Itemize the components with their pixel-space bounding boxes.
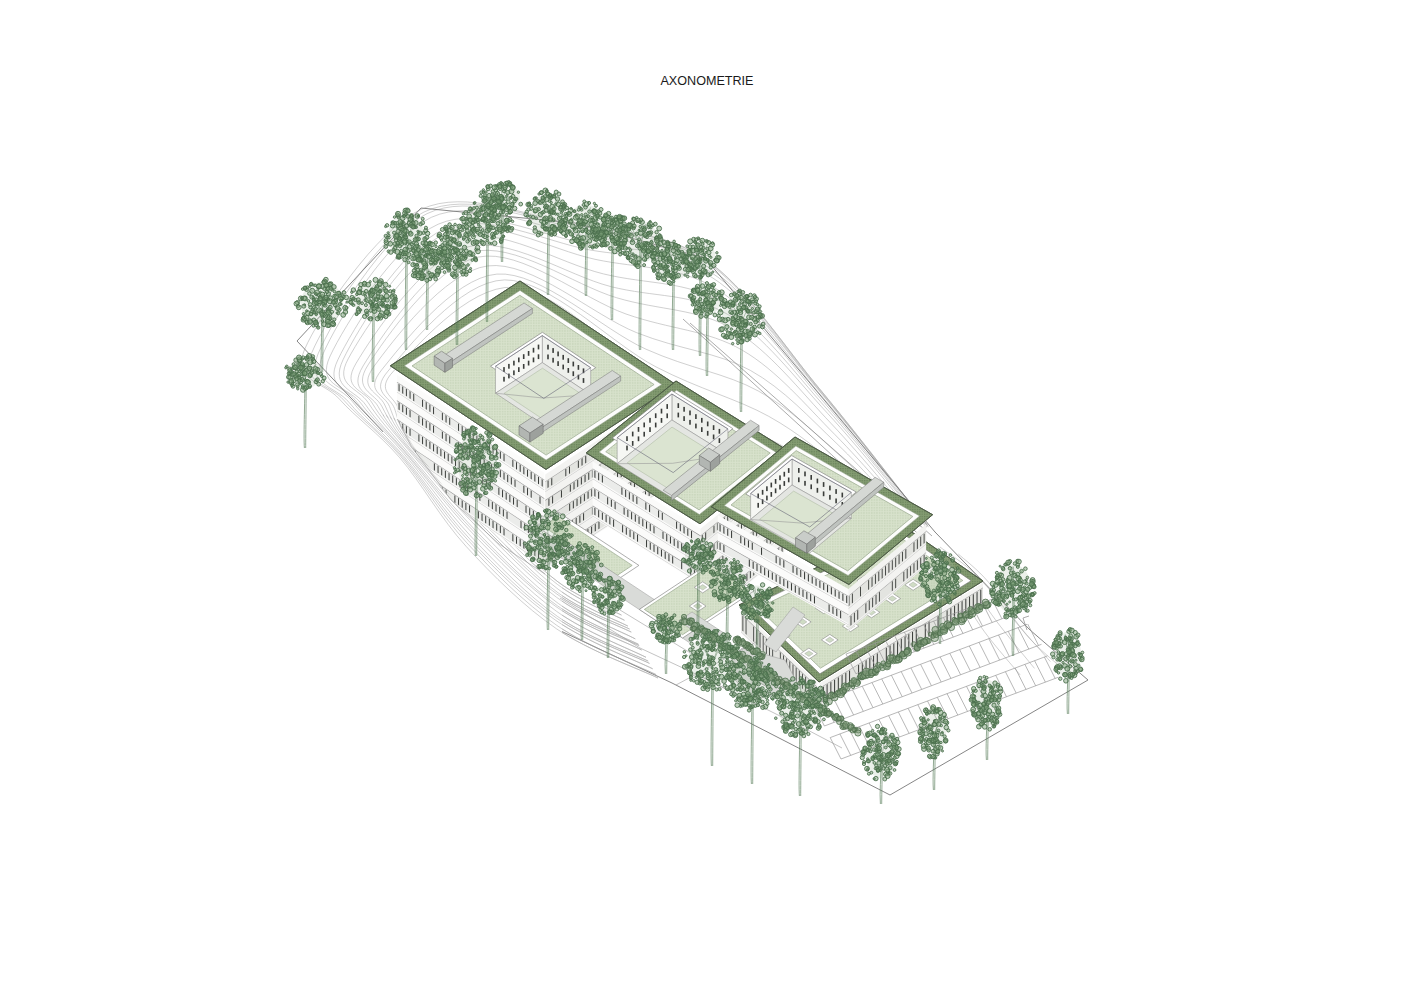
svg-text:AXONOMETRIE: AXONOMETRIE bbox=[660, 74, 753, 88]
